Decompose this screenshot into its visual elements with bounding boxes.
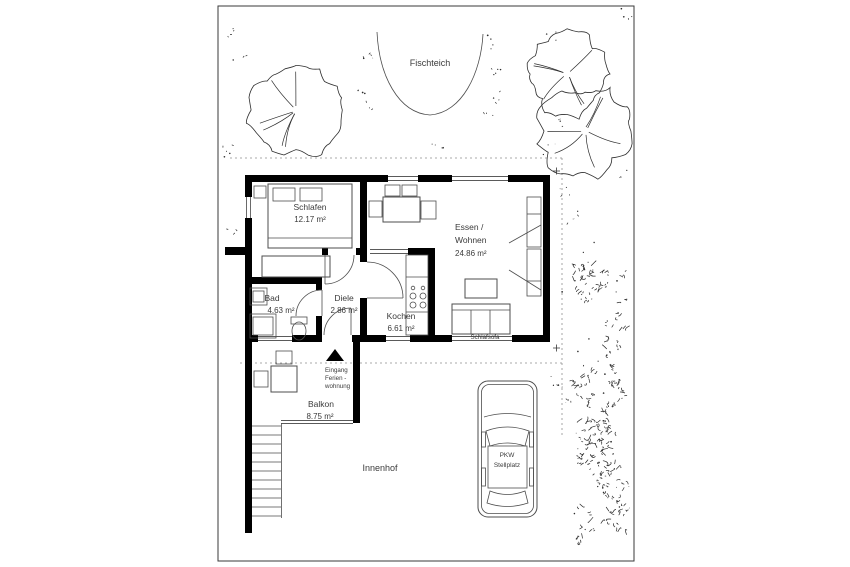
vegetation-dot <box>603 492 605 494</box>
vegetation-dot <box>616 487 617 488</box>
window-north-1 <box>388 174 418 183</box>
wohnen-label-1: Essen / <box>455 222 484 232</box>
vegetation-dot <box>631 16 632 17</box>
vegetation-dot <box>574 280 575 281</box>
vegetation-dot <box>628 486 629 487</box>
vegetation-dot <box>369 107 370 108</box>
vegetation-dot <box>442 147 444 149</box>
vegetation-dot <box>543 154 544 155</box>
vegetation-dot <box>362 92 364 94</box>
vegetation-dot <box>232 59 233 60</box>
vegetation-dot <box>226 151 227 152</box>
vegetation-dot <box>493 97 494 98</box>
vegetation-dot <box>577 351 579 353</box>
wall-stub-west <box>225 247 248 255</box>
vegetation-dot <box>577 211 578 212</box>
vegetation-dot <box>577 448 578 449</box>
kochen-label: Kochen <box>387 311 416 321</box>
wall-balcony-east <box>353 342 360 423</box>
vegetation-dot <box>229 153 231 155</box>
eingang-label-2: Ferien - <box>325 375 346 382</box>
vegetation-dot <box>576 433 577 434</box>
vegetation-dot <box>626 170 627 171</box>
vegetation-dot <box>583 268 584 269</box>
wall-kochen-north <box>408 248 435 255</box>
wall-bad-north <box>245 277 322 284</box>
vegetation-dot <box>432 144 433 145</box>
diele-area: 2.86 m² <box>330 306 357 315</box>
vegetation-dot <box>226 228 227 229</box>
schlafen-label: Schlafen <box>293 202 326 212</box>
vegetation-dot <box>592 269 593 270</box>
vegetation-dot <box>558 119 559 120</box>
eingang-label-1: Eingang <box>325 367 348 374</box>
vegetation-dot <box>490 48 491 49</box>
vegetation-dot <box>553 385 554 386</box>
kochen-area: 6.61 m² <box>387 324 414 333</box>
vegetation-dot <box>574 513 576 515</box>
pond-label: Fischteich <box>410 58 451 68</box>
vegetation-dot <box>492 115 493 116</box>
vegetation-dot <box>616 280 618 282</box>
innenhof-label: Innenhof <box>362 463 398 473</box>
vegetation-dot <box>487 35 489 37</box>
vegetation-dot <box>493 74 494 75</box>
vegetation-dot <box>621 8 623 10</box>
vegetation-dot <box>224 156 226 158</box>
vegetation-dot <box>358 90 359 91</box>
wall-east <box>543 175 550 342</box>
vegetation-dot <box>546 33 547 34</box>
vegetation-dot <box>583 252 584 253</box>
schlafsofa-label: Schlafsofa <box>471 334 500 341</box>
diele-label: Diele <box>334 293 354 303</box>
vegetation-dot <box>606 430 607 431</box>
vegetation-dot <box>495 73 496 74</box>
vegetation-dot <box>598 361 599 362</box>
vegetation-dot <box>597 486 598 487</box>
vegetation-dot <box>561 291 563 293</box>
parking-label-line2: Stellplatz <box>494 462 520 469</box>
vegetation-dot <box>566 187 567 188</box>
vegetation-dot <box>588 262 589 263</box>
vegetation-dot <box>616 291 617 292</box>
vegetation-dot <box>548 144 549 145</box>
vegetation-dot <box>610 441 612 443</box>
vegetation-dot <box>604 373 606 375</box>
window-north-2 <box>452 174 508 183</box>
decorative-path <box>562 387 563 388</box>
eingang-label-3: wohnung <box>324 383 351 390</box>
floor-plan-page: Fischteich <box>0 0 850 567</box>
vegetation-dot <box>623 16 625 18</box>
bad-area: 4.63 m² <box>267 306 294 315</box>
balkon-label: Balkon <box>308 399 334 409</box>
balkon-area: 8.75 m² <box>306 412 333 421</box>
vegetation-dot <box>602 420 604 422</box>
vegetation-dot <box>593 242 594 243</box>
bad-label: Bad <box>264 293 279 303</box>
parking-label-line1: PKW <box>500 452 516 459</box>
vegetation-dot <box>555 31 556 32</box>
vegetation-dot <box>497 69 498 70</box>
vegetation-dot <box>598 462 600 464</box>
wohnen-label-2: Wohnen <box>455 235 487 245</box>
vegetation-dot <box>619 506 620 507</box>
wall-kochen-east <box>428 248 435 342</box>
wall-west <box>245 175 252 533</box>
vegetation-dot <box>588 338 590 340</box>
vegetation-dot <box>490 38 491 39</box>
floor-plan-drawing: Fischteich <box>0 0 850 567</box>
vegetation-dot <box>500 69 501 70</box>
vegetation-dot <box>492 44 493 45</box>
window-west <box>244 197 253 218</box>
vegetation-dot <box>560 121 561 122</box>
vegetation-dot <box>603 392 605 394</box>
schlafen-area: 12.17 m² <box>294 215 326 224</box>
decorative-path <box>366 101 367 103</box>
wohnen-area: 24.86 m² <box>455 249 487 258</box>
vegetation-dot <box>364 93 366 95</box>
decorative-path <box>435 145 436 146</box>
